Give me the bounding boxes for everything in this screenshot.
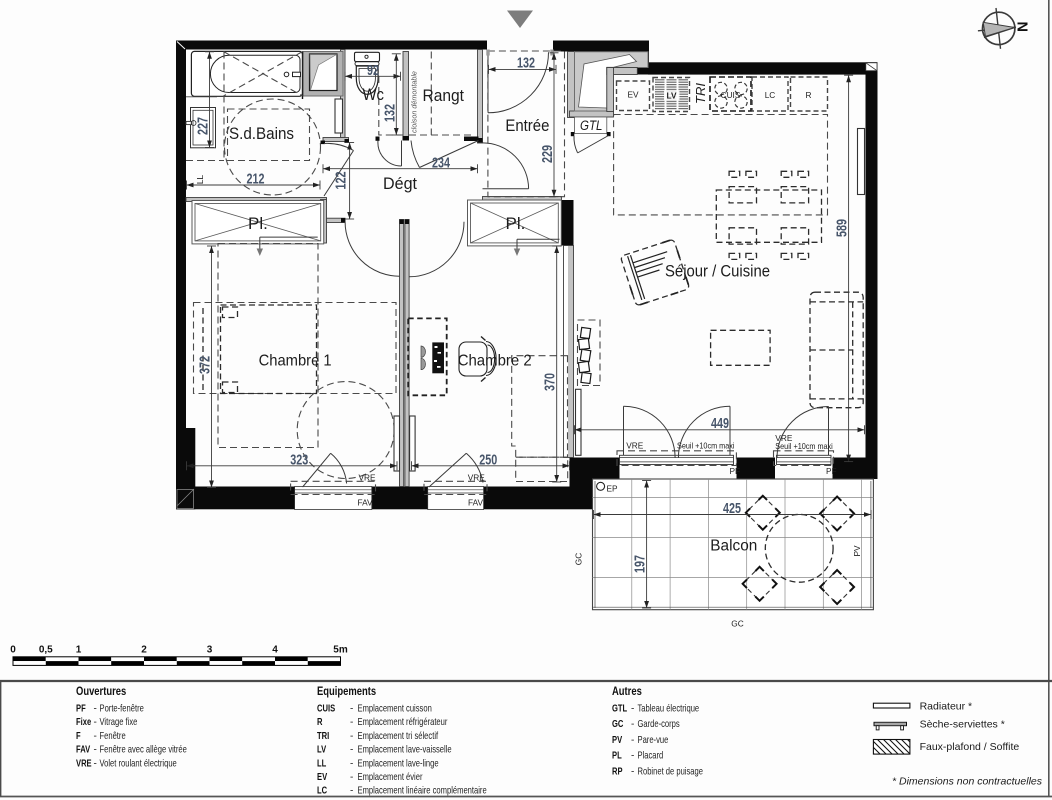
- svg-text:Sèche-serviettes *: Sèche-serviettes *: [920, 719, 1005, 731]
- svg-text:-: -: [94, 745, 97, 756]
- svg-text:GC: GC: [731, 619, 743, 629]
- svg-text:-: -: [631, 751, 634, 762]
- svg-text:Seuil +10cm maxi: Seuil +10cm maxi: [775, 441, 833, 451]
- svg-text:589: 589: [833, 219, 850, 237]
- svg-text:-: -: [631, 704, 634, 715]
- svg-text:LV: LV: [317, 744, 326, 755]
- svg-text:LL: LL: [317, 757, 327, 768]
- svg-text:132: 132: [517, 54, 535, 71]
- svg-text:TRI: TRI: [317, 730, 329, 741]
- svg-text:Emplacement lave-vaisselle: Emplacement lave-vaisselle: [358, 744, 452, 755]
- svg-text:R: R: [317, 716, 323, 727]
- svg-text:Emplacement réfrigérateur: Emplacement réfrigérateur: [358, 716, 448, 727]
- svg-text:-: -: [94, 731, 97, 742]
- svg-text:EV: EV: [627, 90, 639, 100]
- svg-text:Pare-vue: Pare-vue: [638, 734, 669, 745]
- svg-text:LV: LV: [667, 91, 677, 101]
- svg-text:Ouvertures: Ouvertures: [76, 685, 126, 698]
- svg-text:372: 372: [196, 356, 213, 374]
- svg-text:S.d.Bains: S.d.Bains: [229, 124, 294, 143]
- svg-text:Emplacement lave-linge: Emplacement lave-linge: [358, 757, 439, 768]
- svg-text:227: 227: [194, 117, 211, 135]
- svg-text:PF: PF: [826, 466, 837, 476]
- svg-text:5m: 5m: [333, 645, 348, 656]
- svg-text:Balcon: Balcon: [710, 538, 757, 555]
- svg-text:Robinet de puisage: Robinet de puisage: [638, 765, 704, 776]
- svg-text:GC: GC: [574, 553, 584, 565]
- svg-text:FAV: FAV: [357, 498, 373, 508]
- svg-text:4: 4: [272, 645, 278, 656]
- svg-text:-: -: [350, 745, 353, 756]
- svg-text:PV: PV: [612, 734, 622, 745]
- svg-text:Vitrage fixe: Vitrage fixe: [100, 716, 138, 727]
- svg-text:Equipements: Equipements: [317, 685, 376, 698]
- svg-text:0: 0: [10, 645, 16, 656]
- svg-text:LC: LC: [317, 785, 328, 796]
- svg-text:Fixe: Fixe: [76, 716, 91, 727]
- svg-text:GTL: GTL: [580, 118, 603, 133]
- svg-text:Faux-plafond / Soffite: Faux-plafond / Soffite: [920, 741, 1020, 753]
- svg-text:VRE: VRE: [626, 441, 644, 451]
- svg-text:Seuil +10cm maxi: Seuil +10cm maxi: [677, 441, 735, 451]
- svg-text:F: F: [76, 730, 81, 741]
- svg-text:LC: LC: [765, 90, 776, 100]
- svg-text:Pl.: Pl.: [248, 214, 268, 233]
- svg-text:Pl.: Pl.: [506, 214, 526, 233]
- svg-text:* Dimensions non contractuelle: * Dimensions non contractuelles: [892, 776, 1043, 788]
- svg-text:Entrée: Entrée: [505, 116, 549, 135]
- svg-text:Chambre 1: Chambre 1: [259, 353, 332, 370]
- svg-text:-: -: [631, 766, 634, 777]
- svg-text:-: -: [94, 758, 97, 769]
- svg-text:EV: EV: [317, 771, 327, 782]
- svg-text:92: 92: [367, 61, 379, 78]
- svg-text:-: -: [350, 758, 353, 769]
- svg-text:250: 250: [479, 451, 497, 468]
- svg-text:3: 3: [207, 645, 213, 656]
- svg-text:323: 323: [290, 451, 308, 468]
- svg-text:425: 425: [723, 499, 741, 516]
- svg-text:CUIS: CUIS: [721, 90, 741, 100]
- svg-text:Dégt: Dégt: [383, 174, 417, 193]
- svg-text:VRE: VRE: [468, 473, 486, 483]
- svg-text:212: 212: [247, 170, 265, 187]
- svg-text:PF: PF: [730, 466, 741, 476]
- svg-text:Porte-fenêtre: Porte-fenêtre: [100, 702, 144, 713]
- svg-text:449: 449: [711, 414, 729, 431]
- svg-text:Radiateur *: Radiateur *: [920, 701, 973, 713]
- svg-text:Rangt: Rangt: [423, 86, 465, 105]
- svg-text:Volet roulant électrique: Volet roulant électrique: [100, 757, 177, 768]
- svg-text:PL: PL: [612, 750, 622, 761]
- svg-text:122: 122: [332, 172, 349, 190]
- svg-text:CUIS: CUIS: [317, 702, 335, 713]
- svg-text:-: -: [631, 719, 634, 730]
- svg-text:229: 229: [538, 145, 555, 163]
- svg-text:Fenêtre: Fenêtre: [100, 730, 126, 741]
- svg-text:Garde-corps: Garde-corps: [638, 718, 681, 729]
- svg-text:VRE: VRE: [358, 473, 376, 483]
- svg-text:Emplacement linéaire complémen: Emplacement linéaire complémentaire: [358, 785, 487, 796]
- svg-text:370: 370: [541, 373, 558, 391]
- svg-text:-: -: [94, 717, 97, 728]
- svg-text:Tableau électrique: Tableau électrique: [638, 702, 700, 713]
- svg-text:Emplacement cuisson: Emplacement cuisson: [358, 702, 432, 713]
- svg-text:0,5: 0,5: [39, 645, 53, 656]
- svg-text:197: 197: [631, 555, 648, 573]
- svg-text:VRE: VRE: [76, 757, 92, 768]
- svg-text:Fenêtre avec allège vitrée: Fenêtre avec allège vitrée: [100, 744, 187, 755]
- svg-text:-: -: [350, 772, 353, 783]
- svg-text:RP: RP: [612, 765, 623, 776]
- svg-text:cloison démontable: cloison démontable: [410, 71, 419, 133]
- svg-text:1: 1: [76, 645, 82, 656]
- svg-text:GTL: GTL: [612, 702, 628, 713]
- svg-text:Wc: Wc: [363, 85, 385, 104]
- svg-text:Autres: Autres: [612, 685, 642, 698]
- svg-text:Emplacement tri sélectif: Emplacement tri sélectif: [358, 730, 439, 741]
- svg-text:Placard: Placard: [638, 750, 664, 761]
- svg-text:234: 234: [432, 154, 451, 171]
- svg-text:EP: EP: [607, 484, 619, 494]
- svg-text:Emplacement évier: Emplacement évier: [358, 771, 423, 782]
- svg-text:LL: LL: [195, 175, 205, 185]
- svg-text:-: -: [631, 735, 634, 746]
- svg-text:N: N: [1014, 22, 1030, 32]
- svg-text:R: R: [806, 90, 812, 100]
- svg-text:132: 132: [381, 104, 398, 122]
- svg-text:Chambre 2: Chambre 2: [458, 353, 532, 370]
- svg-text:2: 2: [141, 645, 147, 656]
- svg-text:FAV: FAV: [76, 744, 90, 755]
- svg-text:TRI: TRI: [693, 83, 708, 104]
- svg-text:-: -: [350, 786, 353, 797]
- svg-text:Séjour / Cuisine: Séjour / Cuisine: [665, 262, 770, 281]
- svg-text:GC: GC: [612, 718, 624, 729]
- svg-text:PV: PV: [852, 545, 862, 557]
- svg-text:-: -: [350, 731, 353, 742]
- svg-text:FAV: FAV: [468, 498, 484, 508]
- svg-text:-: -: [350, 717, 353, 728]
- svg-text:PF: PF: [76, 702, 86, 713]
- svg-text:-: -: [94, 704, 97, 715]
- svg-text:-: -: [350, 704, 353, 715]
